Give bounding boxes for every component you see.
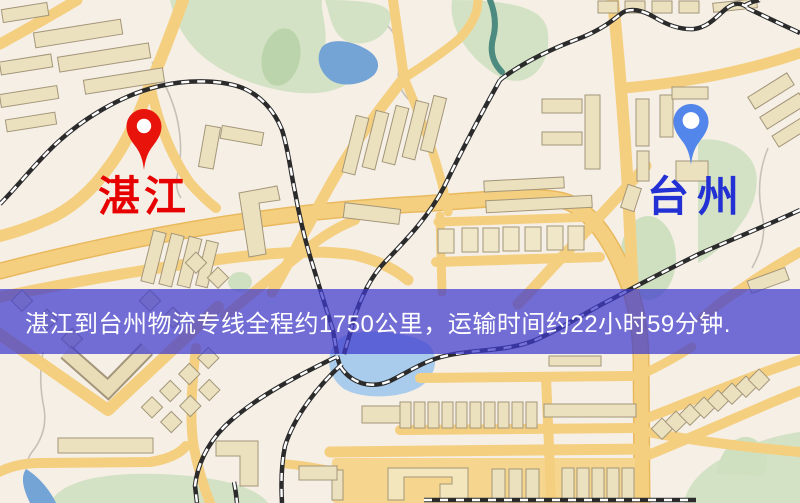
- origin-marker[interactable]: [124, 108, 164, 172]
- map-view: 湛江到台州物流专线全程约1750公里，运输时间约22小时59分钟. 湛江 台州: [0, 0, 800, 503]
- route-info-text: 湛江到台州物流专线全程约1750公里，运输时间约22小时59分钟.: [25, 304, 731, 339]
- origin-pin-hole: [137, 119, 151, 133]
- origin-pin-shape: [127, 109, 162, 170]
- map-background: [0, 0, 800, 503]
- route-info-banner: 湛江到台州物流专线全程约1750公里，运输时间约22小时59分钟.: [0, 289, 800, 354]
- destination-city-label: 台州: [612, 176, 782, 218]
- origin-city-label: 湛江: [58, 176, 230, 218]
- origin-pin-icon: [124, 108, 164, 172]
- destination-pin-icon: [669, 103, 713, 167]
- destination-marker[interactable]: [669, 103, 713, 167]
- destination-pin-hole: [683, 112, 700, 129]
